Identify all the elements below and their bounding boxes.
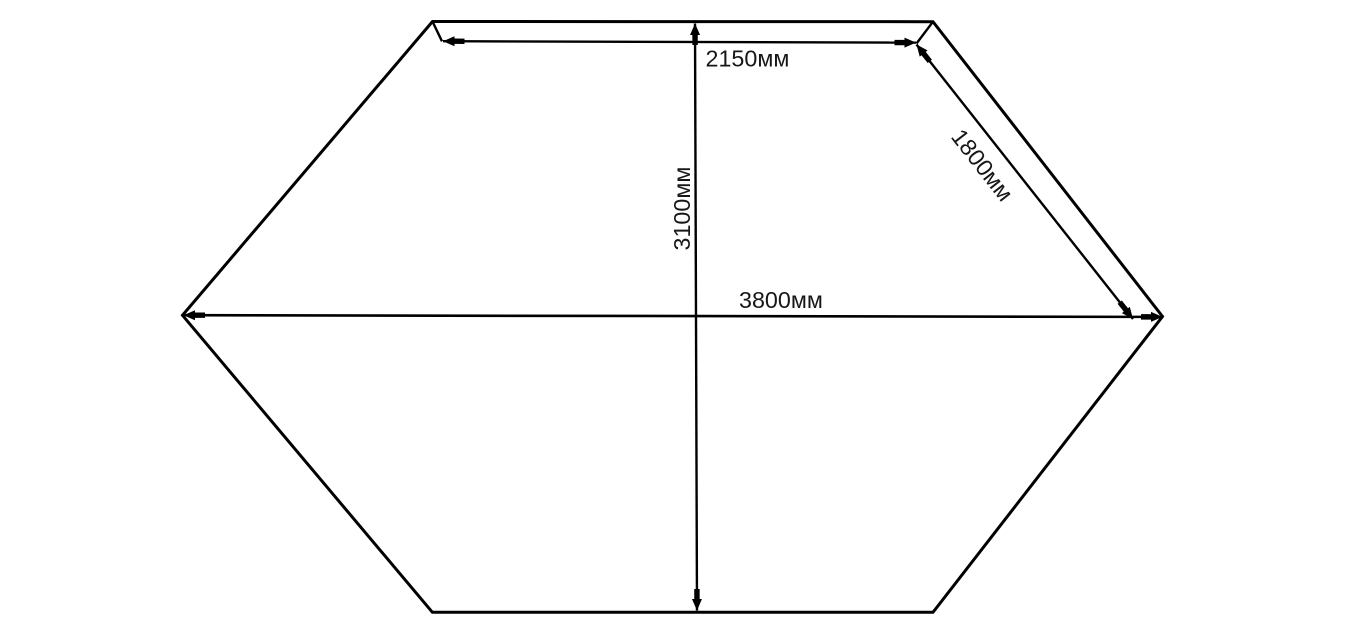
svg-text:3800мм: 3800мм	[739, 287, 823, 313]
svg-text:2150мм: 2150мм	[706, 46, 790, 72]
svg-text:3100мм: 3100мм	[669, 167, 695, 251]
svg-text:1800мм: 1800мм	[946, 124, 1018, 206]
